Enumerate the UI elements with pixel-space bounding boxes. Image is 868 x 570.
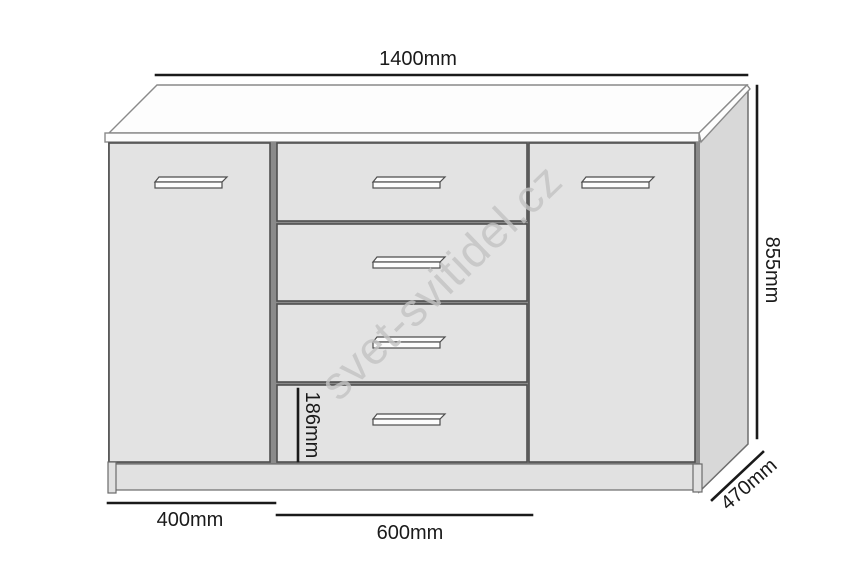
- plinth: [115, 464, 700, 490]
- drawer-width-dimension-label: 600mm: [377, 522, 444, 544]
- height-dimension-label: 855mm: [761, 237, 783, 304]
- left-door-handle: [155, 177, 227, 188]
- right-foot: [693, 464, 702, 492]
- drawer-1-handle: [373, 177, 445, 188]
- right-door-handle: [582, 177, 654, 188]
- cabinet-side-panel: [699, 90, 748, 492]
- furniture-dimension-diagram: svet-svitidel.cz 1400mm 855mm 470mm 400m…: [0, 0, 868, 570]
- width-dimension-label: 1400mm: [379, 48, 457, 70]
- left-foot: [108, 462, 116, 493]
- cabinet-top-face: [109, 85, 747, 133]
- left-door: [109, 143, 270, 462]
- door-width-dimension-label: 400mm: [157, 509, 224, 531]
- drawer-4-handle: [373, 414, 445, 425]
- drawer-height-dimension-label: 186mm: [301, 392, 323, 459]
- cabinet-top-front-band: [105, 133, 699, 142]
- diagram-canvas: svet-svitidel.cz 1400mm 855mm 470mm 400m…: [0, 0, 868, 570]
